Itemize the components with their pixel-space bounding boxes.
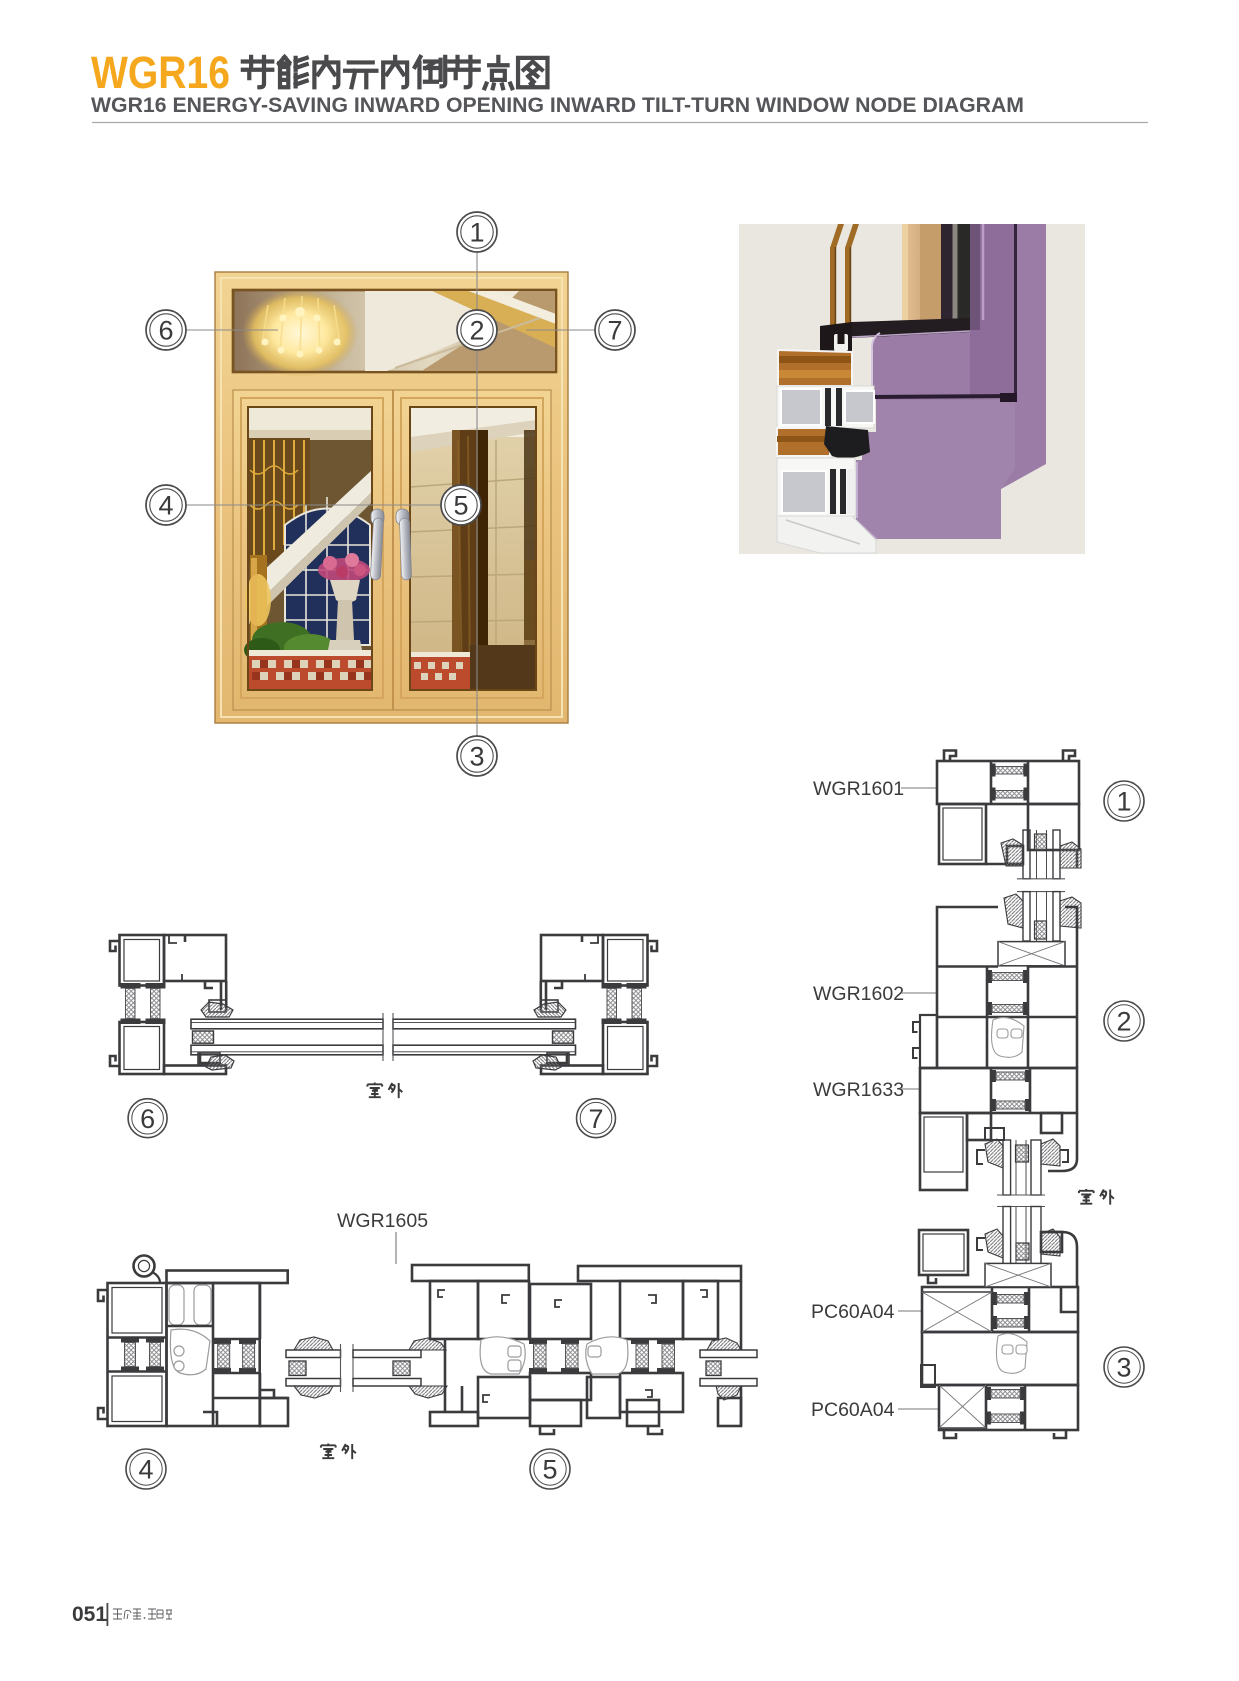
svg-text:6: 6 <box>140 1104 155 1134</box>
svg-text:1: 1 <box>1116 787 1131 817</box>
svg-text:051: 051 <box>72 1603 107 1626</box>
svg-text:PC60A04: PC60A04 <box>811 1399 895 1421</box>
svg-text:2: 2 <box>469 316 484 346</box>
svg-text:WGR1602: WGR1602 <box>813 983 904 1005</box>
svg-text:5: 5 <box>453 491 468 521</box>
svg-text:7: 7 <box>588 1104 603 1134</box>
svg-text:4: 4 <box>158 491 173 521</box>
svg-text:WGR16: WGR16 <box>91 47 230 98</box>
svg-text:WGR1633: WGR1633 <box>813 1079 904 1101</box>
svg-text:3: 3 <box>469 742 484 772</box>
svg-text:6: 6 <box>158 316 173 346</box>
svg-text:5: 5 <box>542 1455 557 1485</box>
svg-text:WGR1605: WGR1605 <box>337 1210 428 1232</box>
svg-text:PC60A04: PC60A04 <box>811 1301 895 1323</box>
svg-text:WGR1601: WGR1601 <box>813 778 904 800</box>
svg-text:2: 2 <box>1116 1007 1131 1037</box>
svg-text:3: 3 <box>1116 1353 1131 1383</box>
svg-text:1: 1 <box>469 218 484 248</box>
svg-text:4: 4 <box>138 1455 153 1485</box>
svg-text:7: 7 <box>607 316 622 346</box>
svg-text:WGR16 ENERGY-SAVING INWARD OPE: WGR16 ENERGY-SAVING INWARD OPENING INWAR… <box>91 94 1024 117</box>
